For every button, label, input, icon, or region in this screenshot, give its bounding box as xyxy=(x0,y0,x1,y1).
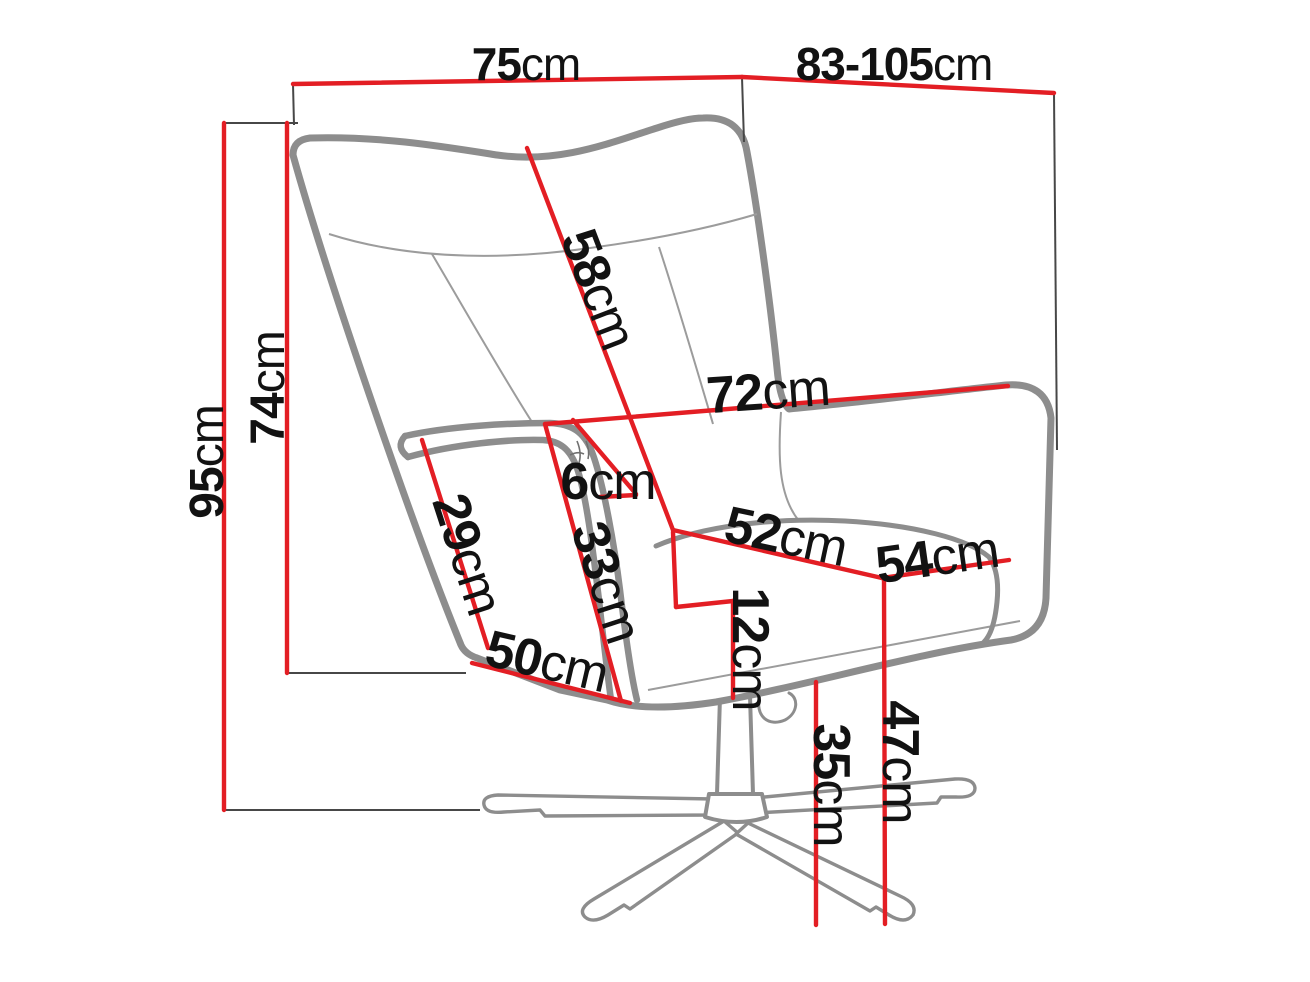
dim-overall-width-label: 75cm xyxy=(472,38,581,90)
dim-seat-height-label: 47cm xyxy=(871,700,929,823)
base-column xyxy=(717,696,753,794)
diagram-canvas: 75cm 83-105cm 95cm 74cm 58cm 72cm 6cm 33… xyxy=(0,0,1310,982)
dim-width-between-arms-label: 72cm xyxy=(705,359,832,425)
dim-backrest-height-label: 74cm xyxy=(242,331,295,444)
dim-under-seat-clearance-label: 35cm xyxy=(802,723,860,846)
extension-left-top xyxy=(293,84,294,125)
base-leg-left xyxy=(484,795,713,816)
base-hub xyxy=(705,794,767,822)
dim-overall-depth-range-label: 83-105cm xyxy=(796,38,993,90)
dim-overall-height-label: 95cm xyxy=(181,405,234,518)
dim-armrest-top-thickness-label: 6cm xyxy=(560,453,655,511)
chair-dimension-diagram: 75cm 83-105cm 95cm 74cm 58cm 72cm 6cm 33… xyxy=(0,0,1310,982)
dim-line-seat-left-edge xyxy=(673,532,676,607)
dim-seat-cushion-thickness-label: 12cm xyxy=(721,587,779,710)
